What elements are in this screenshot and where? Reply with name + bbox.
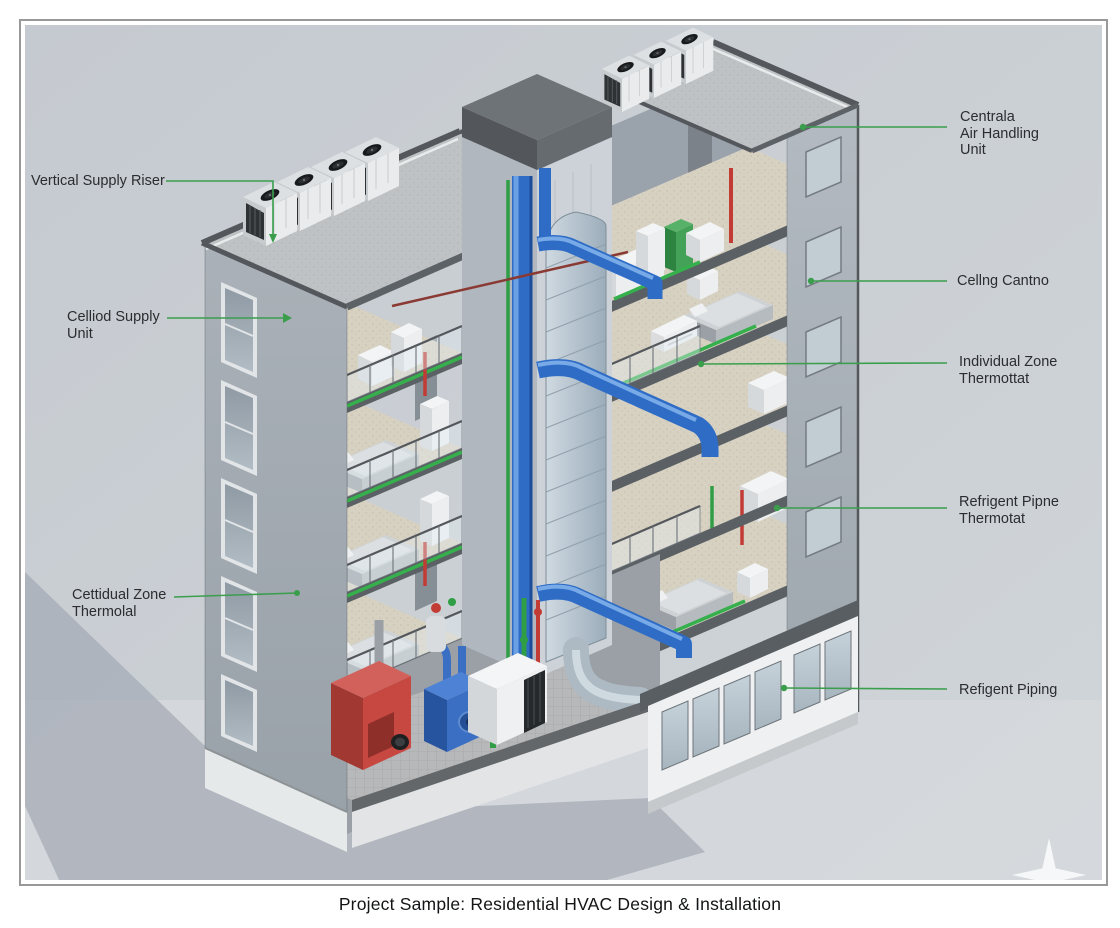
- left-facade: [205, 243, 347, 852]
- illustration-frame: [19, 19, 1108, 886]
- leader-individual-zone-thermostat: [701, 363, 947, 364]
- page: Vertical Supply Riser Celliod SupplyUnit…: [0, 0, 1120, 928]
- building-illustration: [25, 25, 1102, 880]
- caption: Project Sample: Residential HVAC Design …: [0, 894, 1120, 915]
- illustration-canvas: [25, 25, 1102, 880]
- leader-refrigerant-piping: [784, 688, 947, 689]
